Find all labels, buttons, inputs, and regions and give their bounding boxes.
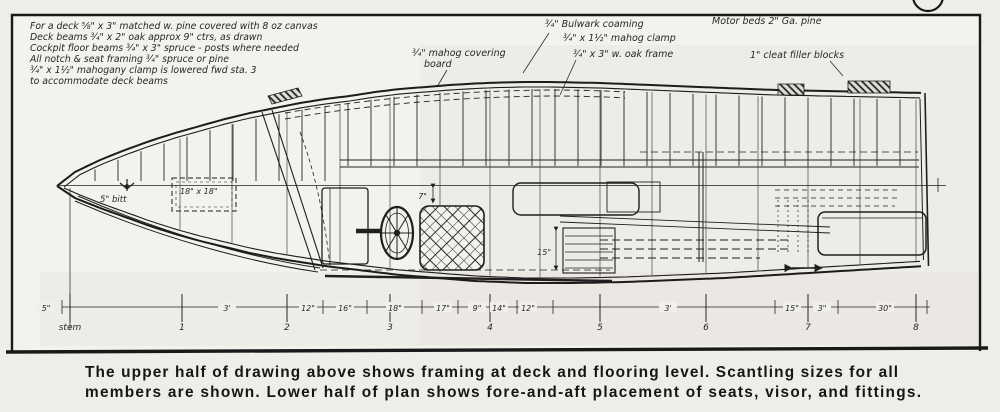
callout-covering-board-2: board bbox=[424, 59, 453, 70]
dim-label: 30" bbox=[878, 304, 892, 313]
note-line: For a deck ⅝" x 3" matched w. pine cover… bbox=[30, 21, 318, 32]
dim-label: 3' bbox=[664, 304, 671, 313]
callout-oak-frame: ¾" x 3" w. oak frame bbox=[573, 49, 673, 60]
dim-label: 3' bbox=[223, 304, 230, 313]
dim-label: 18" bbox=[388, 304, 402, 313]
note-line: All notch & seat framing ¾" spruce or pi… bbox=[29, 54, 229, 65]
note-line: Cockpit floor beams ¾" x 3" spruce - pos… bbox=[30, 43, 299, 54]
note-line: Deck beams ¾" x 2" oak approx 9" ctrs, a… bbox=[30, 32, 263, 43]
caption-line-1: The upper half of drawing above shows fr… bbox=[85, 364, 898, 381]
dim-label: 14" bbox=[492, 304, 506, 313]
label-engine-bed-dim: 15" bbox=[537, 248, 551, 257]
station-label: 1 bbox=[179, 323, 185, 333]
note-line: ¾" x 1½" mahogany clamp is lowered fwd s… bbox=[30, 65, 257, 76]
station-label: stem bbox=[59, 323, 82, 333]
label-seat-dim: 7" bbox=[418, 192, 427, 201]
dim-label: 3" bbox=[818, 304, 827, 313]
station-label: 2 bbox=[284, 323, 290, 333]
callout-bulwark-coaming: ¾" Bulwark coaming bbox=[545, 19, 644, 30]
dim-label: 9" bbox=[473, 304, 482, 313]
helm-seat bbox=[420, 206, 484, 270]
callout-covering-board: ¾" mahog covering bbox=[412, 48, 506, 59]
dim-label: 12" bbox=[521, 304, 535, 313]
station-label: 3 bbox=[387, 323, 393, 333]
label-bitt: 5" bitt bbox=[100, 195, 127, 205]
note-line: to accommodate deck beams bbox=[30, 76, 168, 87]
dim-label: 5" bbox=[42, 304, 51, 313]
dim-label: 17" bbox=[436, 304, 450, 313]
station-label: 5 bbox=[597, 323, 603, 333]
station-label: 7 bbox=[805, 323, 811, 333]
station-label: 6 bbox=[703, 323, 709, 333]
figure-caption: The upper half of drawing above shows fr… bbox=[85, 364, 921, 401]
label-fwd-hatch: 18" x 18" bbox=[180, 187, 218, 196]
dim-label: 16" bbox=[338, 304, 352, 313]
station-label: 8 bbox=[913, 323, 919, 333]
scanned-boat-plan-page: For a deck ⅝" x 3" matched w. pine cover… bbox=[0, 0, 1000, 412]
page-number-circle bbox=[913, 0, 943, 11]
dim-label: 12" bbox=[301, 304, 315, 313]
callout-motor-beds: Motor beds 2" Ga. pine bbox=[712, 16, 822, 27]
station-label: 4 bbox=[487, 323, 493, 333]
callout-mahog-clamp: ¾" x 1½" mahog clamp bbox=[563, 33, 676, 44]
callout-cleat-filler: 1" cleat filler blocks bbox=[750, 50, 844, 61]
dim-label: 15" bbox=[785, 304, 799, 313]
boat-plan-drawing: For a deck ⅝" x 3" matched w. pine cover… bbox=[0, 0, 1000, 412]
caption-line-2: members are shown. Lower half of plan sh… bbox=[85, 384, 921, 401]
